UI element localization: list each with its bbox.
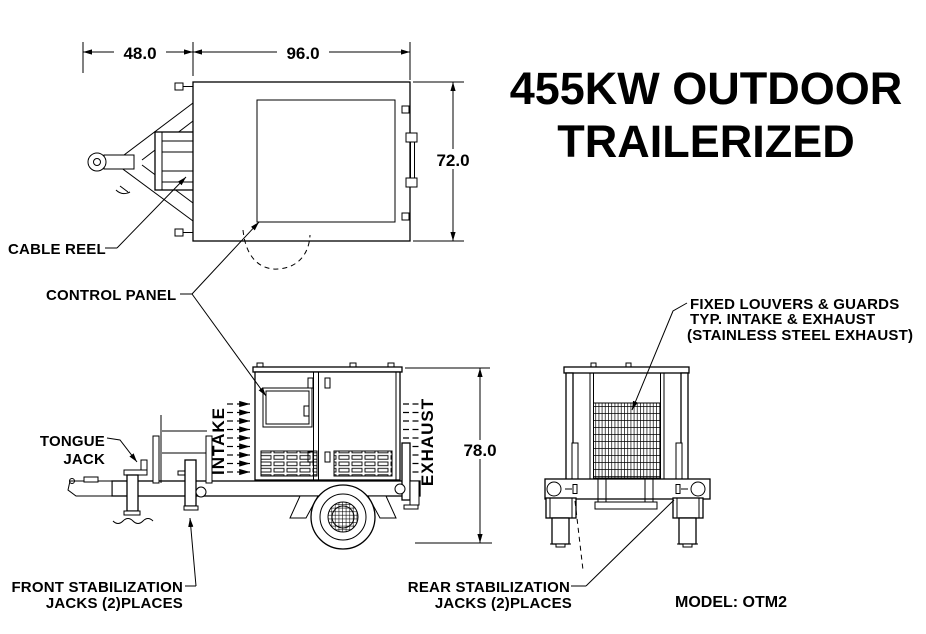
- rear-view: [545, 363, 710, 547]
- control-panel-label: CONTROL PANEL: [46, 287, 176, 304]
- title-line2: TRAILERIZED: [557, 116, 855, 167]
- side-view: INTAKE EXHAUST: [68, 363, 437, 549]
- title-line1: 455KW OUTDOOR: [510, 63, 903, 114]
- top-view: [88, 82, 417, 269]
- dim-overall-height: 78.0: [463, 441, 496, 460]
- louver-vent-left: [261, 451, 317, 476]
- leader-fixed-louvers: [632, 303, 687, 410]
- hitch-side: [68, 477, 112, 496]
- model-label: MODEL: OTM2: [675, 594, 787, 611]
- fixed-louvers-label-3: (STAINLESS STEEL EXHAUST): [687, 327, 913, 344]
- dim-tongue-length: 48.0: [123, 44, 156, 63]
- front-jacks-label-1: FRONT STABILIZATION: [11, 579, 183, 596]
- intake-label: INTAKE: [209, 407, 228, 475]
- fixed-louvers-label-2: TYP. INTAKE & EXHAUST: [690, 311, 875, 328]
- callout-labels: CABLE REEL CONTROL PANEL TONGUE JACK FRO…: [8, 241, 913, 612]
- engineering-drawing-sheet: 48.0 96.0 72.0 455KW OUTDOOR TRAILERIZED: [0, 0, 926, 634]
- rear-jacks-label-2: JACKS (2)PLACES: [435, 595, 572, 612]
- hitch-coupler: [88, 153, 134, 194]
- rear-top-rail: [564, 367, 689, 373]
- enclosure-side: [253, 363, 402, 480]
- tongue-jack-label-2: JACK: [63, 451, 105, 468]
- dim-body-length: 96.0: [286, 44, 319, 63]
- tongue-jack-label-1: TONGUE: [40, 433, 105, 450]
- rear-jacks-label-1: REAR STABILIZATION: [408, 579, 570, 596]
- drawing-canvas: 48.0 96.0 72.0 455KW OUTDOOR TRAILERIZED: [0, 0, 926, 634]
- control-panel-window: [263, 388, 312, 427]
- dimension-96: 96.0: [193, 42, 410, 80]
- exhaust-label: EXHAUST: [418, 398, 437, 486]
- leader-front-jacks: [185, 518, 196, 586]
- drawing-title: 455KW OUTDOOR TRAILERIZED: [510, 63, 903, 167]
- rear-step: [595, 502, 657, 509]
- louver-vent-right: [334, 451, 392, 476]
- intake-arrows: [227, 404, 250, 472]
- leader-rear-jacks: [571, 500, 674, 586]
- front-jacks-label-2: JACKS (2)PLACES: [46, 595, 183, 612]
- dimension-48: 48.0: [83, 42, 193, 76]
- cable-reel-label: CABLE REEL: [8, 241, 106, 258]
- dimension-72: 72.0: [413, 82, 472, 241]
- rear-light-right: [691, 482, 705, 496]
- dim-body-width: 72.0: [436, 151, 469, 170]
- leader-tongue-jack: [107, 438, 137, 462]
- rear-stab-jack-right: [673, 498, 703, 547]
- exhaust-grille: [594, 403, 661, 478]
- enclosure-plan-body: [193, 82, 410, 241]
- rear-light-left: [547, 482, 561, 496]
- rear-stab-jack-left: [546, 498, 576, 547]
